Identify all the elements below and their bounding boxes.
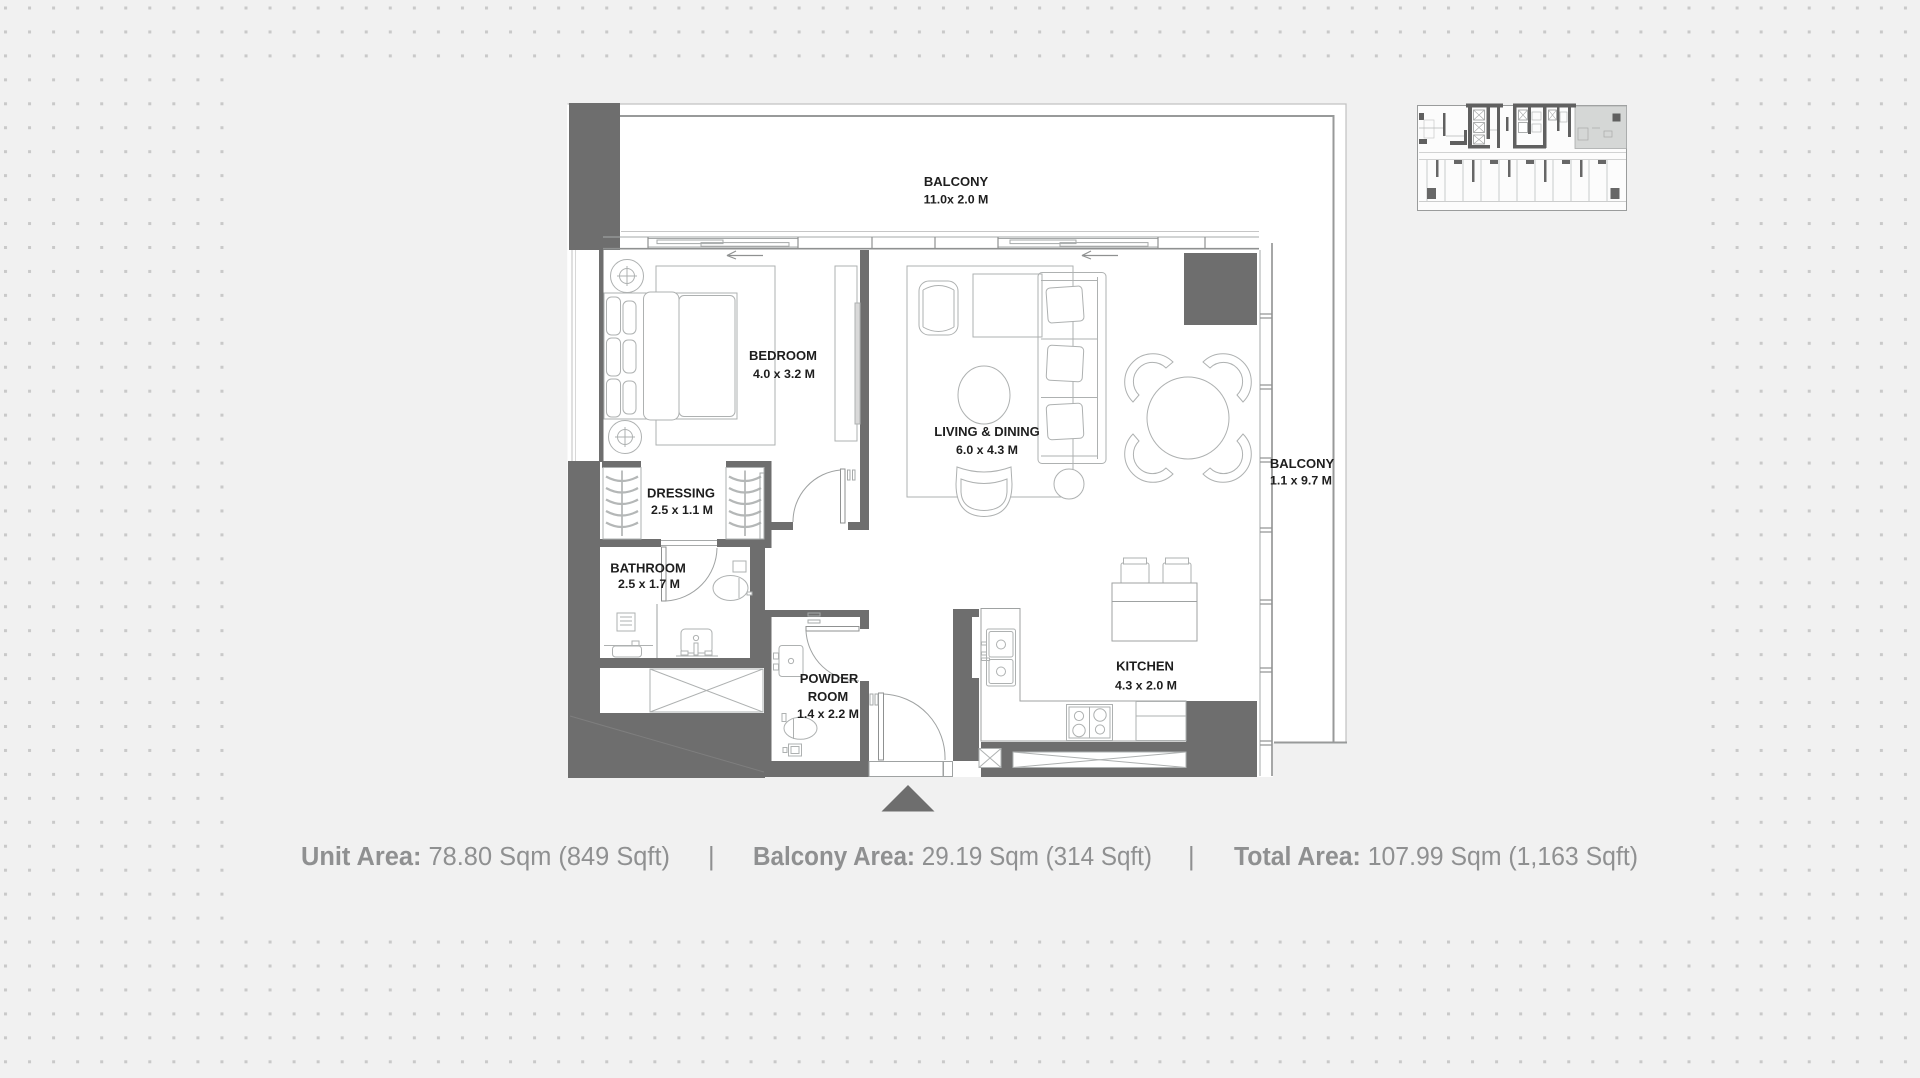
svg-text:Unit Area: 78.80 Sqm (849 Sqft: Unit Area: 78.80 Sqm (849 Sqft) [301,843,670,871]
svg-text:LIVING & DINING: LIVING & DINING [934,424,1039,439]
svg-text:11.0x 2.0 M: 11.0x 2.0 M [924,193,989,207]
svg-text:POWDER: POWDER [800,671,859,686]
svg-text:2.5 x 1.7 M: 2.5 x 1.7 M [618,577,680,591]
svg-text:|: | [708,843,715,871]
svg-text:Total Area: 107.99 Sqm (1,163: Total Area: 107.99 Sqm (1,163 Sqft) [1234,843,1638,871]
svg-text:6.0 x 4.3 M: 6.0 x 4.3 M [956,443,1018,457]
svg-text:BALCONY: BALCONY [924,174,989,189]
svg-text:|: | [1188,843,1195,871]
svg-text:1.1 x 9.7 M: 1.1 x 9.7 M [1270,474,1332,488]
svg-text:4.0 x 3.2 M: 4.0 x 3.2 M [753,367,815,381]
svg-text:Balcony Area: 29.19 Sqm (314 S: Balcony Area: 29.19 Sqm (314 Sqft) [753,843,1152,871]
svg-text:KITCHEN: KITCHEN [1116,659,1174,674]
svg-text:BALCONY: BALCONY [1270,456,1335,471]
svg-text:2.5 x 1.1 M: 2.5 x 1.1 M [651,503,713,517]
svg-text:BATHROOM: BATHROOM [610,561,686,576]
svg-text:1.4 x 2.2 M: 1.4 x 2.2 M [797,707,859,721]
svg-text:4.3 x 2.0 M: 4.3 x 2.0 M [1115,679,1177,693]
svg-text:ROOM: ROOM [808,689,848,704]
svg-text:BEDROOM: BEDROOM [749,348,817,363]
svg-text:DRESSING: DRESSING [647,486,715,501]
